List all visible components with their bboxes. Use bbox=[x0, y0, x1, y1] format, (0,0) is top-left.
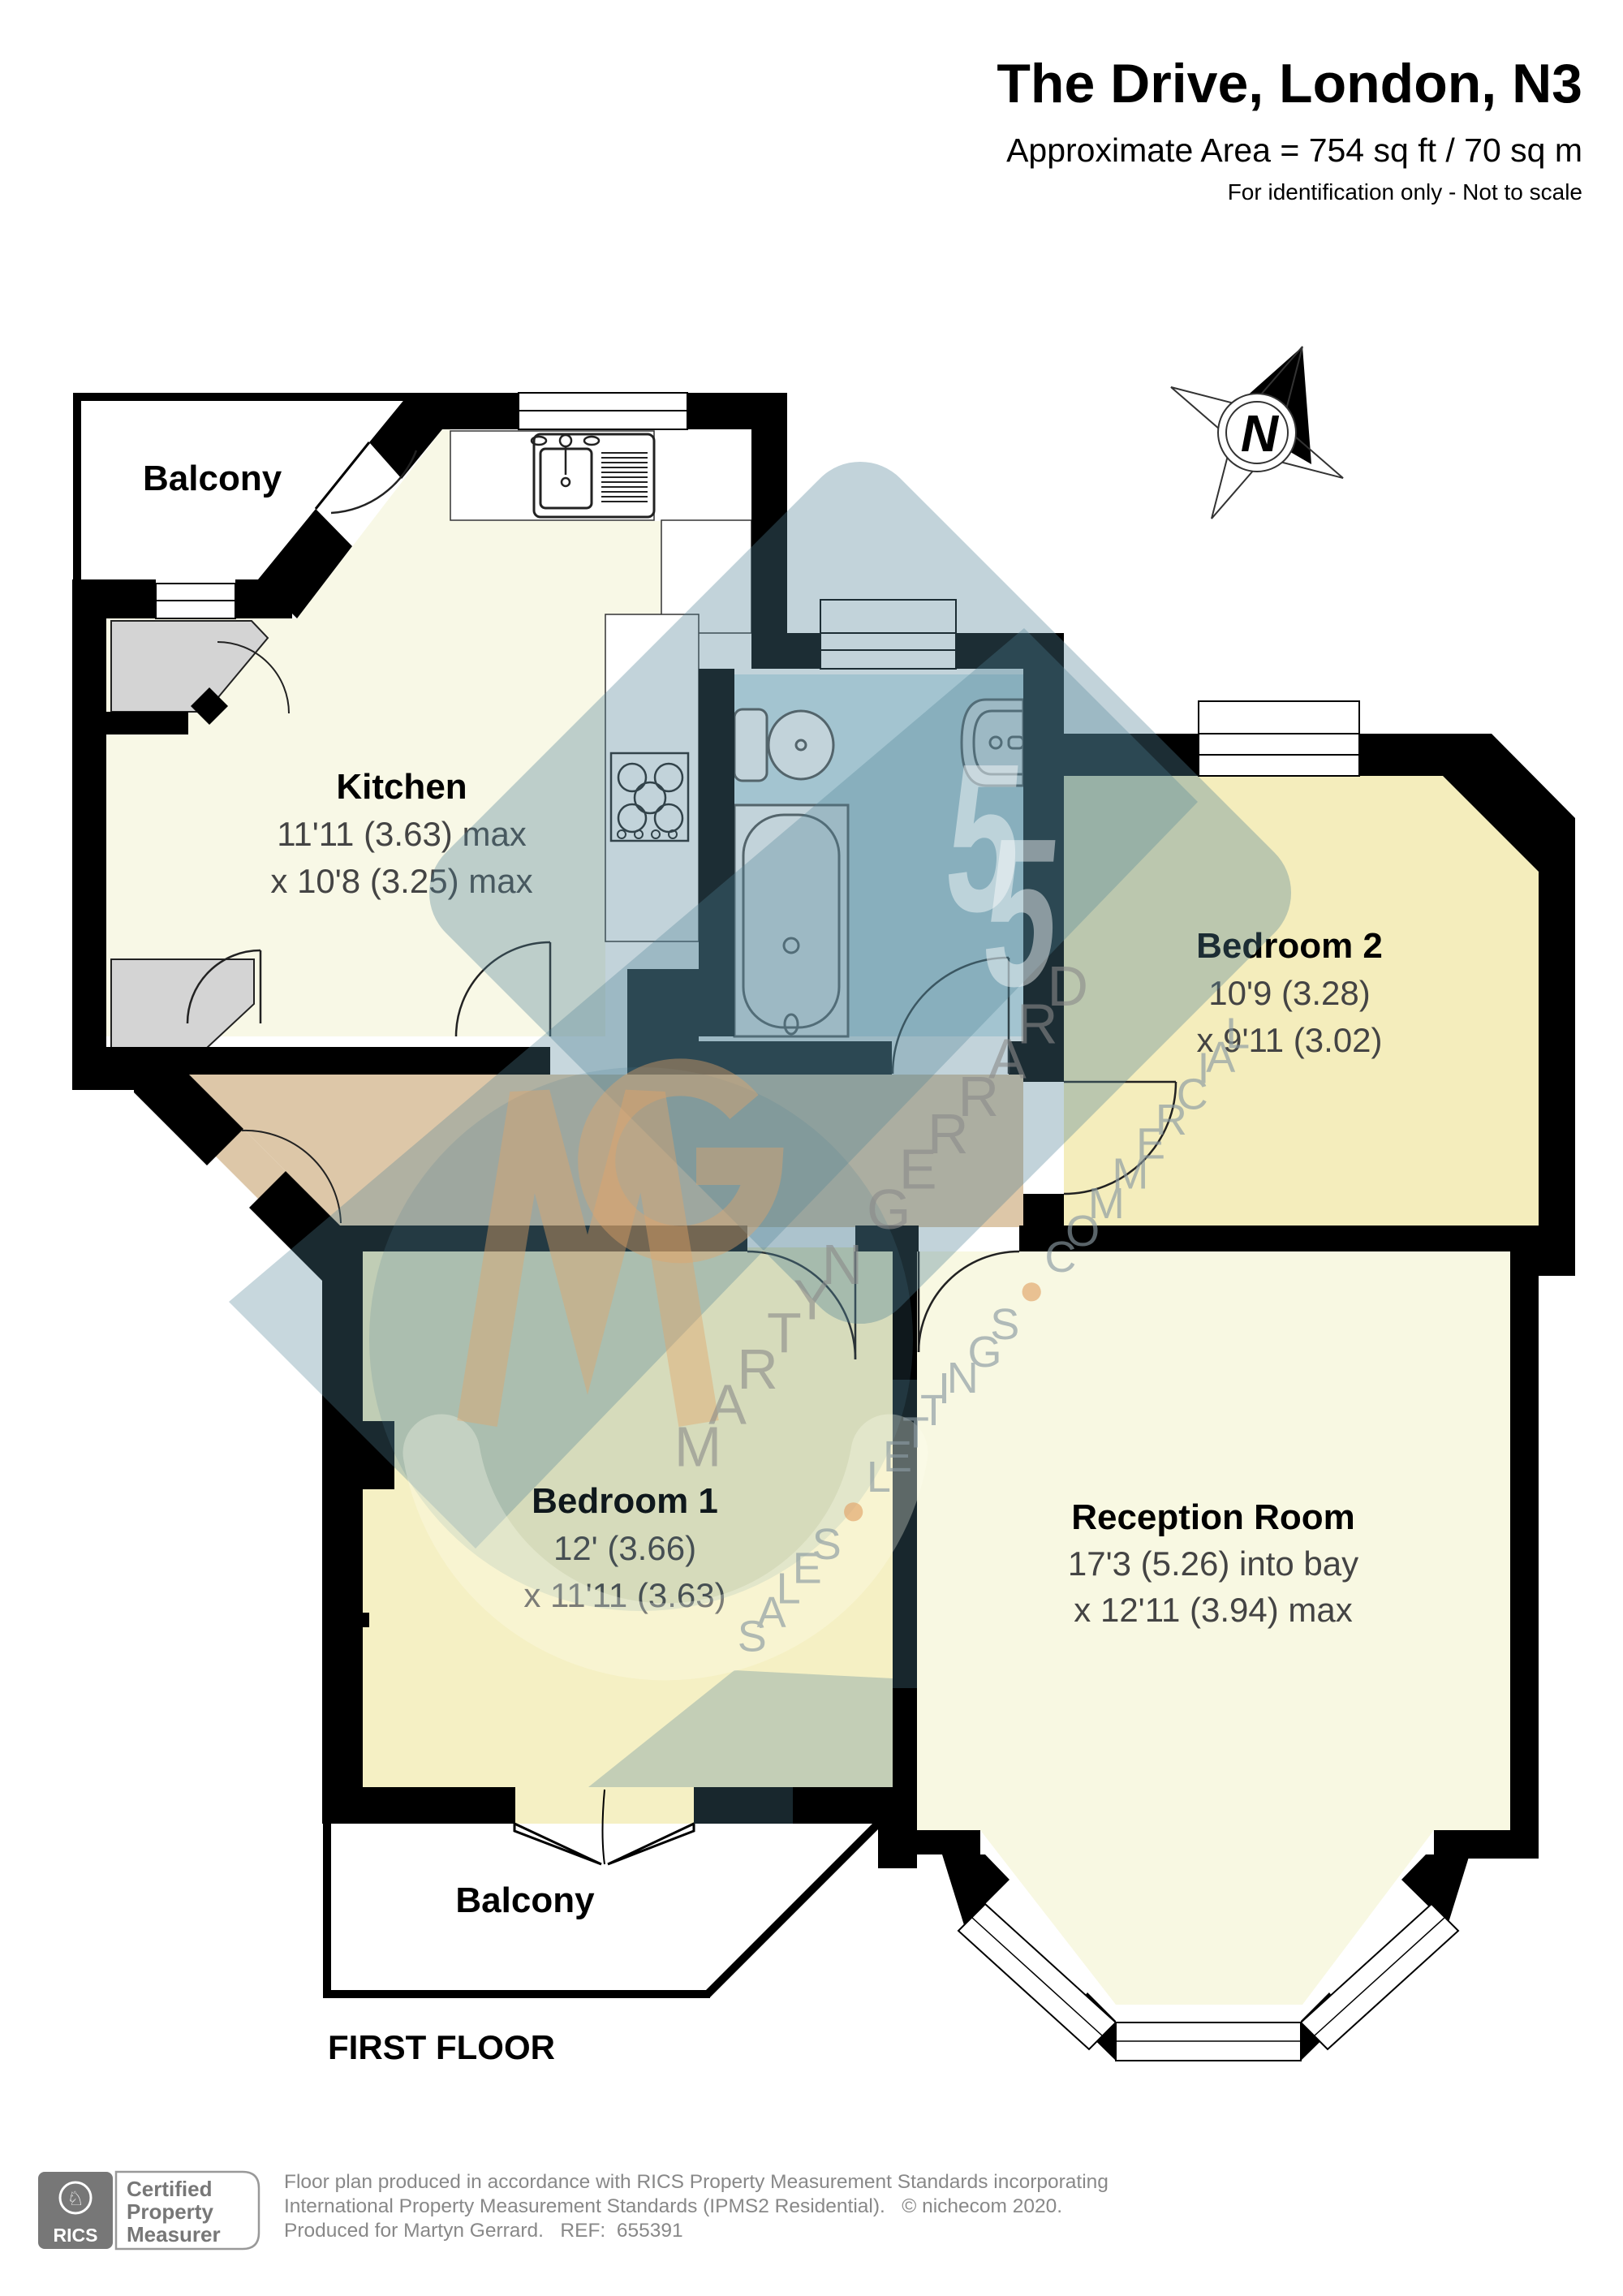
svg-text:♘: ♘ bbox=[67, 2188, 84, 2210]
svg-text:The Drive, London, N3: The Drive, London, N3 bbox=[997, 53, 1582, 114]
svg-text:10'9 (3.28): 10'9 (3.28) bbox=[1208, 974, 1370, 1012]
svg-text:Kitchen: Kitchen bbox=[336, 767, 467, 807]
svg-text:Certified: Certified bbox=[127, 2177, 212, 2201]
svg-text:FIRST FLOOR: FIRST FLOOR bbox=[328, 2028, 555, 2066]
svg-text:Balcony: Balcony bbox=[143, 459, 282, 498]
svg-text:17'3 (5.26) into bay: 17'3 (5.26) into bay bbox=[1068, 1544, 1358, 1583]
svg-text:Balcony: Balcony bbox=[455, 1880, 595, 1920]
svg-text:RICS: RICS bbox=[54, 2225, 98, 2246]
svg-text:x 12'11 (3.94) max: x 12'11 (3.94) max bbox=[1074, 1591, 1352, 1629]
svg-text:Measurer: Measurer bbox=[127, 2222, 221, 2246]
svg-text:N: N bbox=[1241, 404, 1280, 463]
svg-text:Produced for Martyn Gerrard.: Produced for Martyn Gerrard. REF: 655391 bbox=[284, 2220, 683, 2242]
svg-text:Floor plan produced in accorda: Floor plan produced in accordance with R… bbox=[284, 2171, 1109, 2193]
svg-text:Approximate Area = 754 sq ft /: Approximate Area = 754 sq ft / 70 sq m bbox=[1006, 131, 1582, 169]
svg-text:For identification only - Not: For identification only - Not to scale bbox=[1228, 179, 1582, 205]
svg-text:Property: Property bbox=[127, 2199, 213, 2224]
svg-text:International Property Measure: International Property Measurement Stand… bbox=[284, 2195, 1062, 2217]
svg-text:Reception Room: Reception Room bbox=[1071, 1497, 1355, 1537]
